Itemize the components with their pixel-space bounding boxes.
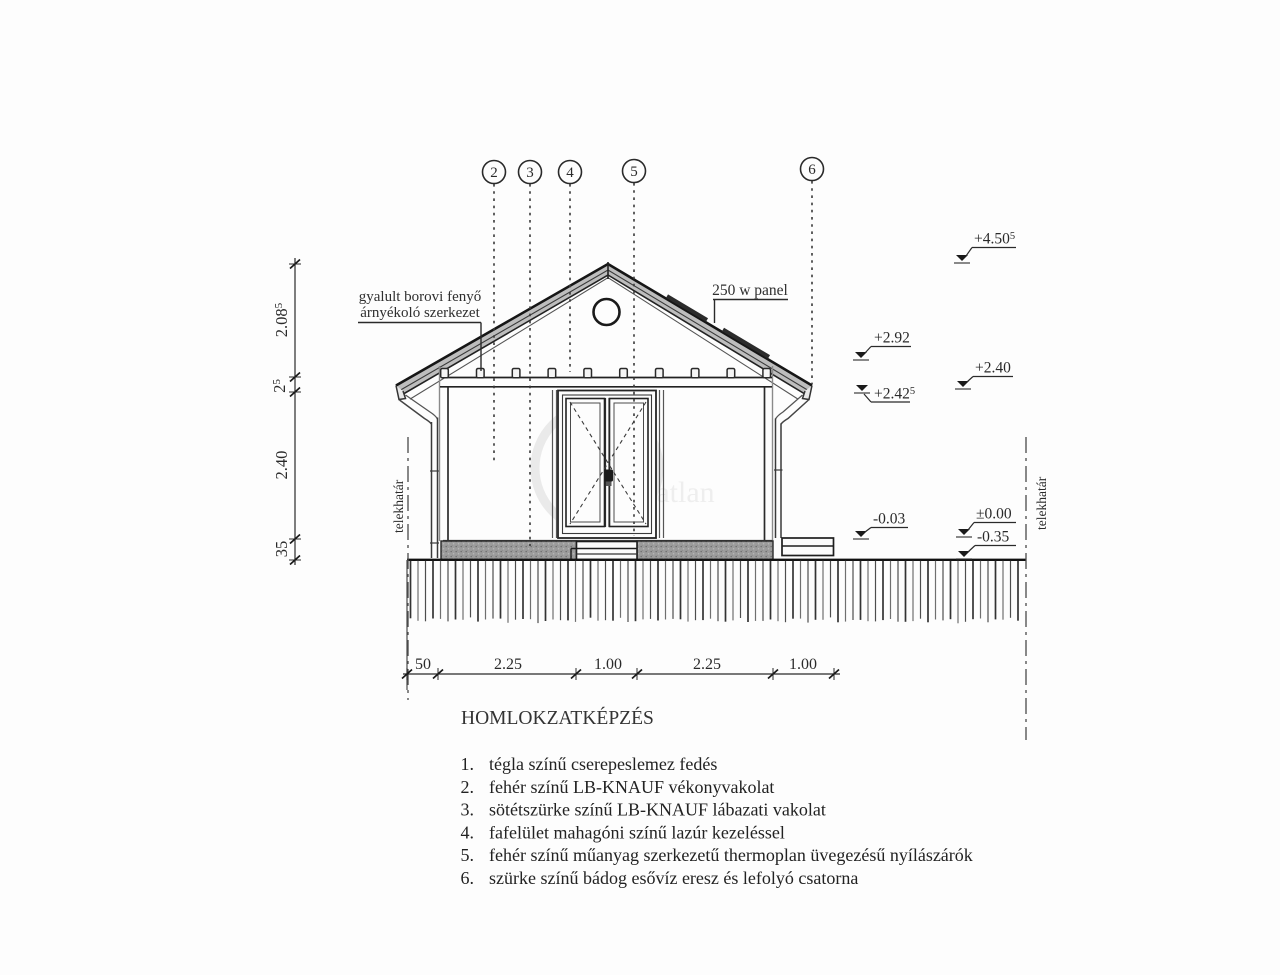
svg-text:tégla színű cserepeslemez fedé: tégla színű cserepeslemez fedés — [489, 754, 717, 774]
svg-text:1.00: 1.00 — [789, 656, 817, 673]
svg-text:2.25: 2.25 — [693, 656, 721, 673]
svg-text:+4.505: +4.505 — [974, 231, 1015, 248]
svg-text:250 w panel: 250 w panel — [712, 282, 788, 299]
svg-text:50: 50 — [415, 656, 431, 673]
svg-text:1.: 1. — [461, 754, 475, 774]
svg-text:-0.03: -0.03 — [873, 511, 906, 528]
svg-text:fehér színű műanyag szerkezetű: fehér színű műanyag szerkezetű thermopla… — [489, 845, 973, 865]
svg-text:HOMLOKZATKÉPZÉS: HOMLOKZATKÉPZÉS — [461, 707, 654, 729]
svg-text:+2.40: +2.40 — [975, 360, 1011, 377]
svg-text:2.25: 2.25 — [494, 656, 522, 673]
svg-text:2: 2 — [490, 165, 498, 181]
svg-text:+2.92: +2.92 — [874, 330, 910, 347]
svg-text:fafelület mahagóni színű lazúr: fafelület mahagóni színű lazúr kezelésse… — [489, 822, 785, 842]
svg-text:±0.00: ±0.00 — [976, 506, 1012, 523]
svg-text:5.: 5. — [461, 845, 475, 865]
svg-text:1.00: 1.00 — [594, 656, 622, 673]
svg-text:3: 3 — [526, 165, 534, 181]
svg-text:árnyékoló szerkezet: árnyékoló szerkezet — [360, 305, 480, 321]
svg-text:szürke színű bádog esővíz eres: szürke színű bádog esővíz eresz és lefol… — [489, 868, 858, 888]
svg-text:gyalult borovi fenyő: gyalult borovi fenyő — [359, 289, 481, 305]
svg-text:3.: 3. — [461, 800, 475, 820]
svg-text:telekhatár: telekhatár — [1034, 476, 1049, 530]
svg-text:6.: 6. — [461, 868, 475, 888]
svg-text:-0.35: -0.35 — [977, 529, 1010, 546]
svg-text:telekhatár: telekhatár — [391, 479, 406, 533]
svg-text:35: 35 — [272, 541, 291, 558]
svg-text:4.: 4. — [461, 822, 475, 842]
svg-text:sötétszürke színű LB-KNAUF láb: sötétszürke színű LB-KNAUF lábazati vako… — [489, 800, 826, 820]
svg-text:2.40: 2.40 — [272, 451, 291, 480]
svg-text:+2.425: +2.425 — [874, 386, 915, 403]
svg-text:6: 6 — [808, 162, 816, 178]
svg-text:2.: 2. — [461, 777, 475, 797]
svg-text:5: 5 — [630, 164, 638, 180]
svg-text:4: 4 — [566, 165, 574, 181]
svg-text:fehér színű LB-KNAUF vékonyvak: fehér színű LB-KNAUF vékonyvakolat — [489, 777, 774, 797]
